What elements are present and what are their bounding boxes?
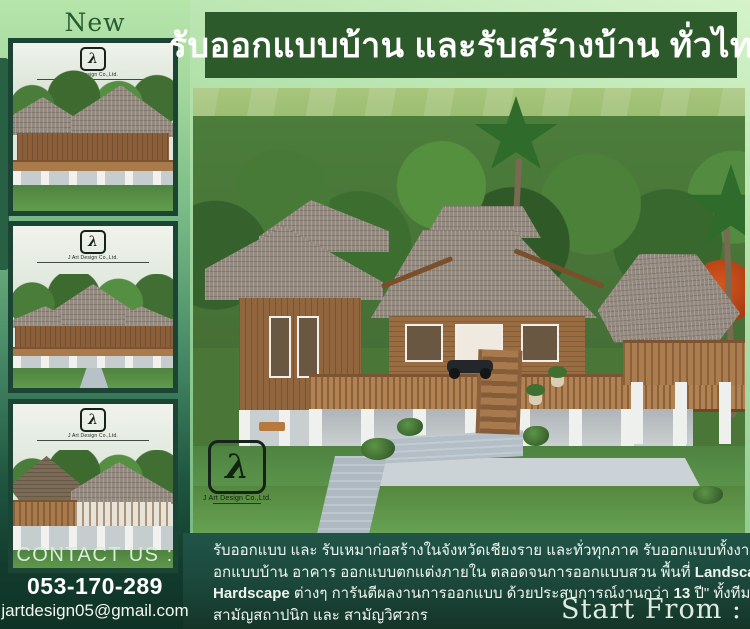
logo-mark-icon: λ [80, 47, 106, 71]
footer-description-line: รับออกแบบ และ รับเหมาก่อสร้างในจังหวัดเช… [213, 540, 743, 562]
footer-description-bold-segment: Landscape [695, 564, 750, 581]
bench [259, 422, 285, 431]
potted-plant [551, 376, 564, 387]
logo-company-text: J Art Design Co.,Ltd. [13, 255, 173, 261]
thumb-deck [13, 500, 77, 528]
banner-title-text: รับออกแบบบ้าน และรับสร้างบ้าน ทั่วไทย [169, 18, 750, 72]
company-logo: λ J Art Design Co.,Ltd. [13, 230, 173, 263]
footer-description-segment: รับออกแบบ และ รับเหมาก่อสร้างในจังหวัดเช… [213, 542, 750, 559]
logo-tagline-bar [37, 440, 149, 441]
contact-heading: CONTACT US : [0, 544, 190, 567]
logo-tagline-bar [37, 262, 149, 263]
thumb-wall [15, 326, 173, 348]
pavilion-deck [623, 340, 745, 385]
thumbnail-house-2: λ J Art Design Co.,Ltd. [8, 221, 178, 393]
house-window [269, 316, 291, 378]
pavilion-pillars [631, 382, 741, 444]
house-window [521, 324, 559, 362]
company-logo: λ J Art Design Co.,Ltd. [13, 408, 173, 441]
logo-tagline-bar [213, 503, 261, 504]
thumb-wall [17, 133, 169, 161]
company-logo: λ J Art Design Co.,Ltd. [203, 440, 271, 504]
logo-mark-icon: λ [80, 408, 106, 432]
motorbike [447, 360, 493, 373]
contact-phone: 053-170-289 [0, 573, 190, 600]
main-render: λ J Art Design Co.,Ltd. [193, 88, 745, 533]
footer-description-segment: อกแบบบ้าน อาคาร ออกแบบตกแต่งภายใน ตลอดจน… [213, 564, 695, 581]
thumbnail-house-1: λ J Art Design Co.,Ltd. [8, 38, 178, 216]
new-badge: New [0, 8, 190, 37]
lawn-front [193, 486, 745, 533]
logo-mark-icon: λ [208, 440, 266, 494]
house-window [405, 324, 443, 362]
contact-email: jartdesign05@gmail.com [0, 601, 190, 621]
logo-mark-icon: λ [80, 230, 106, 254]
thumb-lawn [13, 185, 173, 216]
thumb-wall [75, 502, 171, 526]
house-window [297, 316, 319, 378]
footer-description-segment: สามัญสถาปนิก และ สามัญวิศวกร [213, 607, 428, 624]
flyer-page: New λ J Art Design Co.,Ltd. λ J Art Desi… [0, 0, 750, 629]
logo-company-text: J Art Design Co.,Ltd. [13, 433, 173, 439]
start-from-label: Start From : [561, 594, 742, 625]
potted-plant [529, 394, 542, 405]
footer-description-line: อกแบบบ้าน อาคาร ออกแบบตกแต่งภายใน ตลอดจน… [213, 562, 743, 584]
footer-description-bold-segment: Hardscape [213, 585, 290, 602]
logo-company-text: J Art Design Co.,Ltd. [203, 495, 271, 502]
title-banner: รับออกแบบบ้าน และรับสร้างบ้าน ทั่วไทย [205, 12, 737, 78]
